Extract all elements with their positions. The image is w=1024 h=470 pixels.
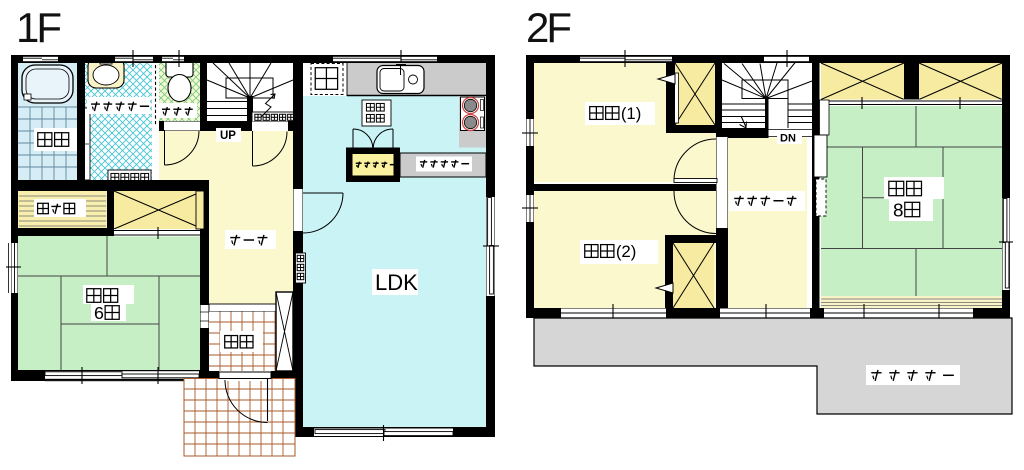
svg-text:8: 8	[893, 200, 904, 221]
svg-text:1F: 1F	[16, 4, 60, 51]
svg-text:UP: UP	[220, 130, 236, 142]
svg-text:DN: DN	[780, 133, 796, 145]
svg-text:LDK: LDK	[375, 270, 418, 295]
svg-text:2F: 2F	[526, 4, 570, 51]
svg-text:(1): (1)	[621, 104, 642, 123]
svg-text:6: 6	[94, 303, 104, 323]
svg-text:(2): (2)	[616, 242, 637, 261]
